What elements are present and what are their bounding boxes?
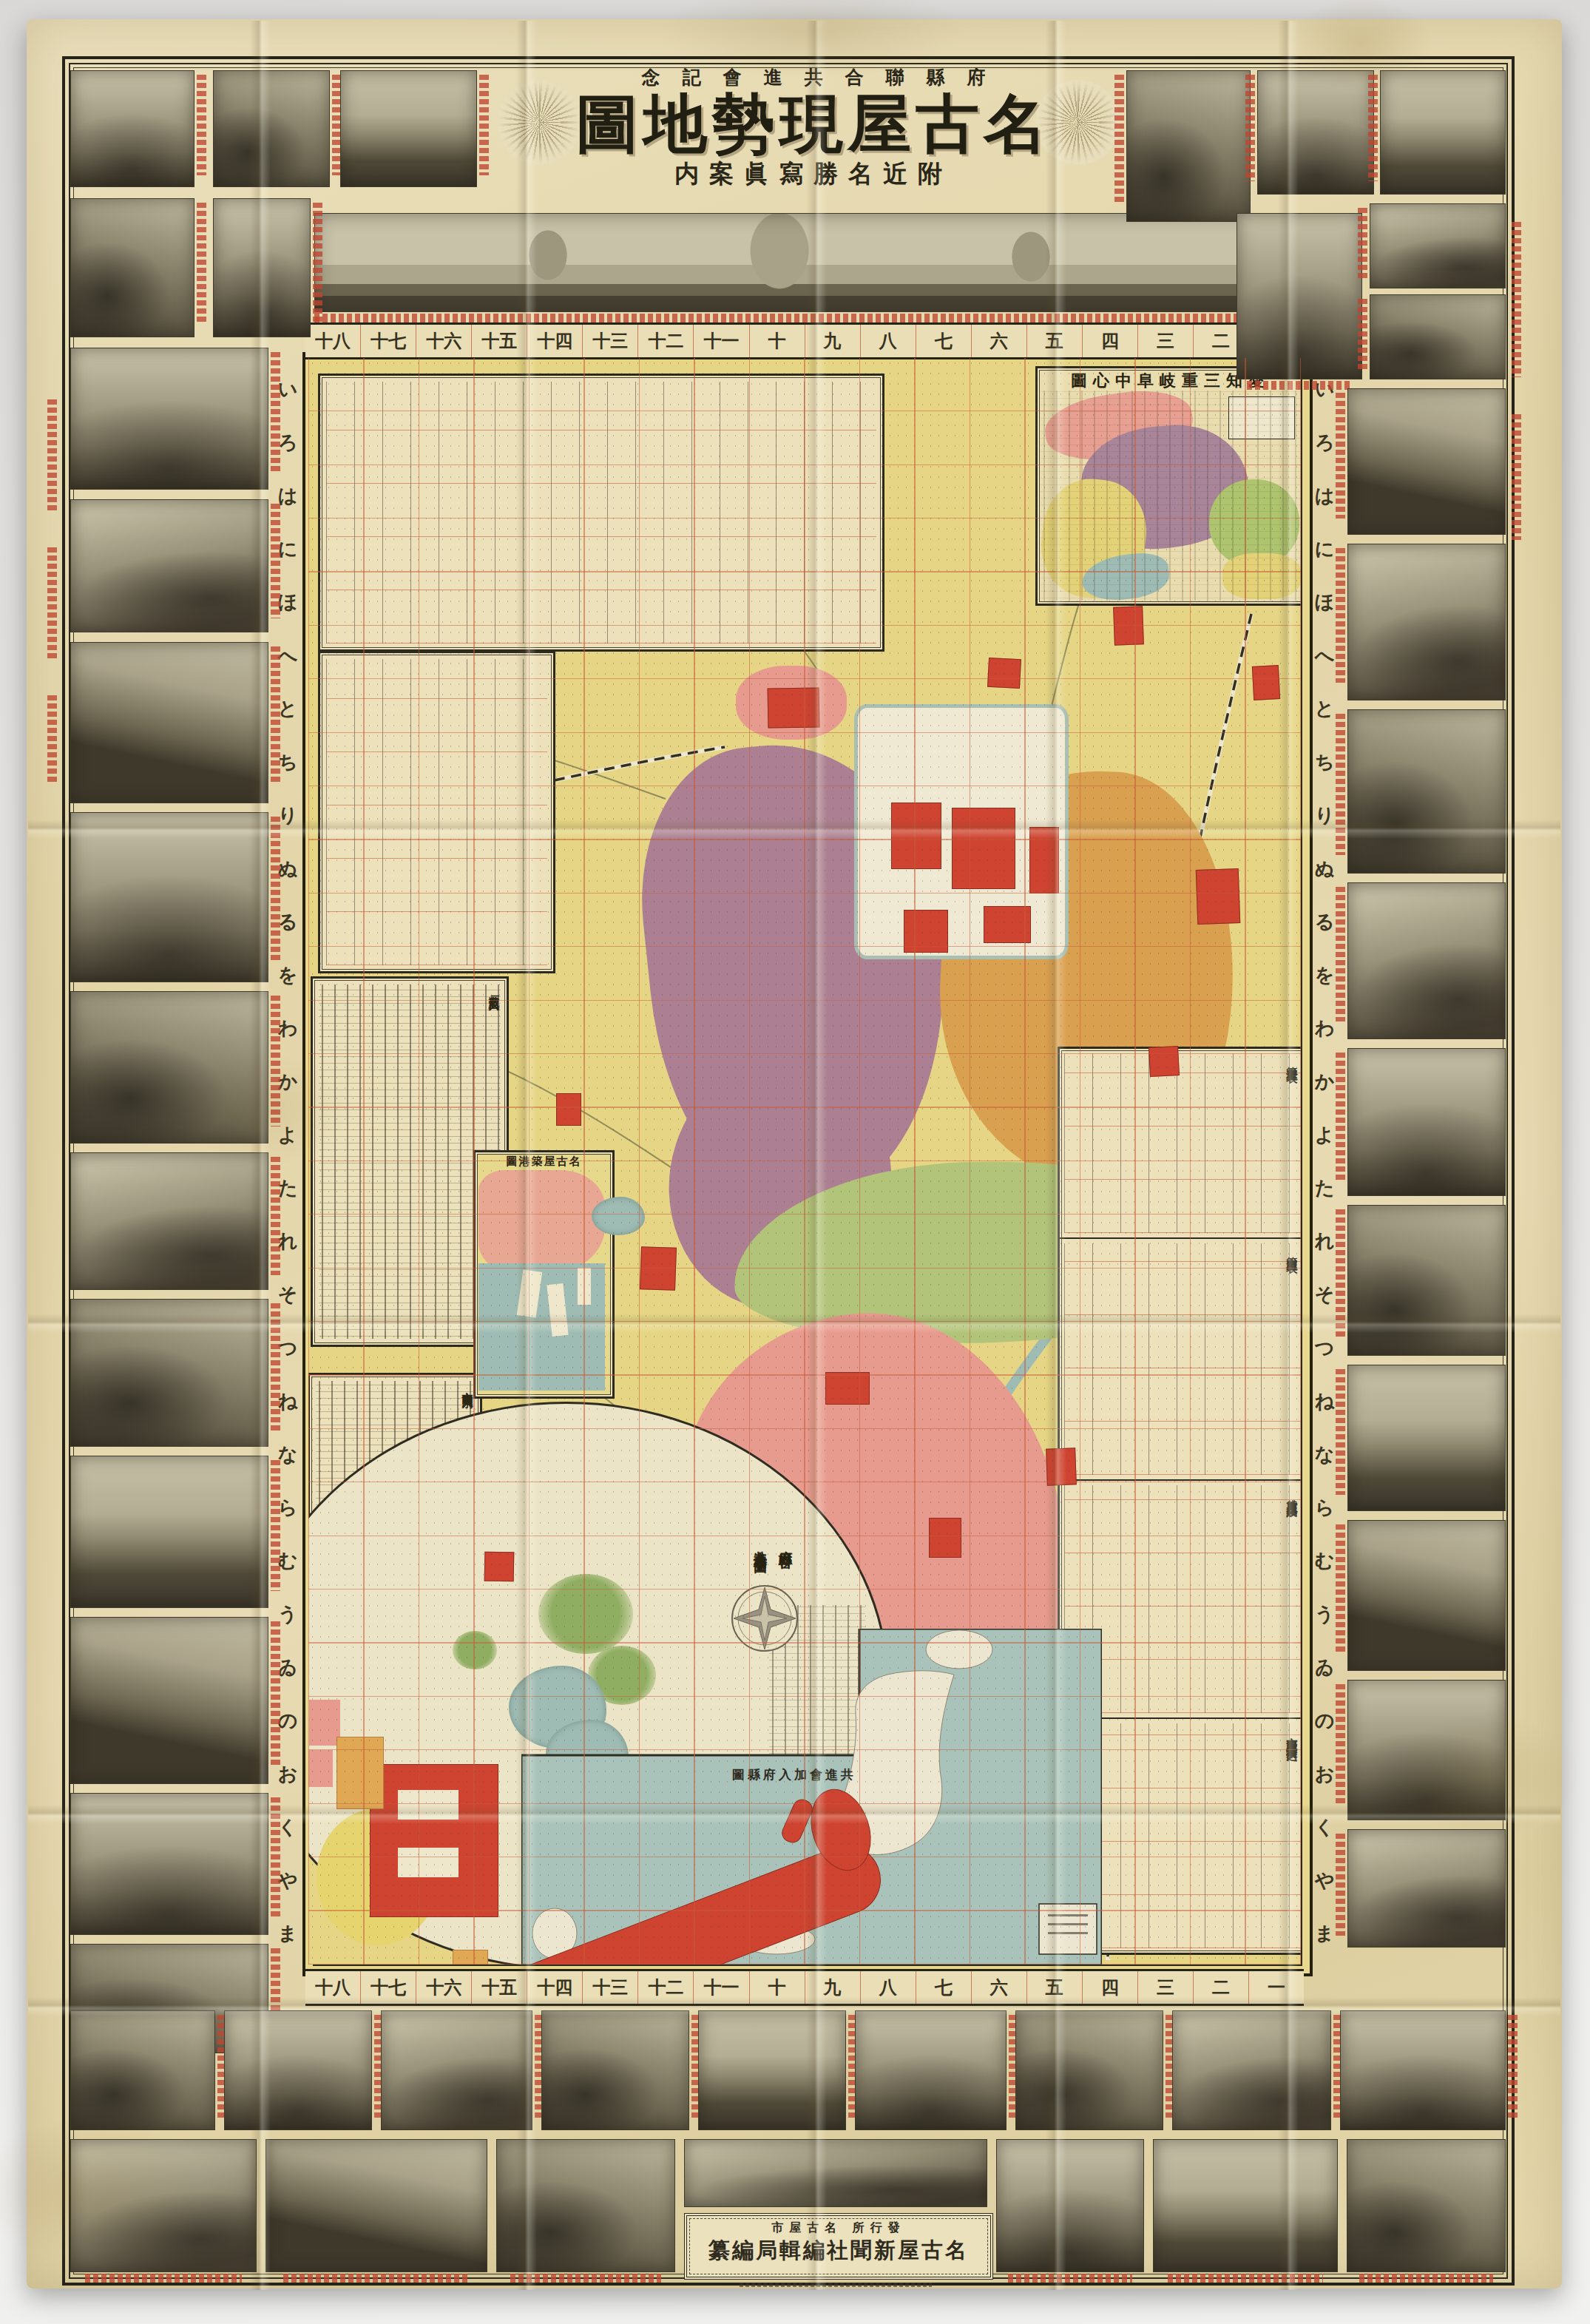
photo-caption <box>1358 299 1367 372</box>
photograph-of-antique-nagoya-map: 念記會進共合聯縣府 圖地勢現屋古名 内案眞寫勝名近附 十八十七十六十五十四十三十… <box>0 0 1590 2324</box>
grid-row-label: を <box>1310 948 1339 1001</box>
border-photo <box>698 2010 846 2130</box>
table-header: 市内警察取締營業之内 <box>1285 1728 1299 1743</box>
photo-caption <box>1168 2274 1323 2283</box>
photo-caption <box>1247 381 1353 390</box>
exposition-title-col1: 府縣聯合 <box>777 1540 794 1710</box>
regional-place-names <box>1041 391 1301 601</box>
photo-caption <box>271 1157 280 1275</box>
grid-column-number: 十四 <box>527 1971 582 2004</box>
photo-caption <box>1008 2274 1132 2283</box>
port-land <box>478 1170 605 1274</box>
border-photo <box>1126 70 1251 222</box>
border-photo <box>70 1793 268 1935</box>
photo-caption <box>313 203 322 322</box>
expo-outbuilding <box>336 1737 384 1809</box>
publisher-cartouche: 市屋古名 所行發 纂編局輯編社聞新屋古名 <box>684 2213 993 2280</box>
border-photo <box>1237 213 1362 379</box>
grid-row-label: そ <box>1310 1268 1339 1321</box>
table-text <box>1064 1053 1301 1233</box>
photo-caption <box>1508 2015 1518 2118</box>
photo-image <box>1347 1365 1506 1511</box>
photo-image <box>70 198 194 337</box>
photo-image <box>213 70 330 187</box>
grid-column-number: 二 <box>1193 1971 1248 2004</box>
grid-column-numbers-bottom: 十八十七十六十五十四十三十二十一十九八七六五四三二一 <box>305 1969 1304 2006</box>
castle-building <box>952 808 1015 889</box>
photo-caption <box>271 352 280 474</box>
photo-caption <box>1114 75 1124 205</box>
grid-row-label: と <box>1310 682 1339 735</box>
border-photo <box>1340 2010 1506 2130</box>
grid-row-label: は <box>1310 469 1339 522</box>
table-header: 管内里程表 <box>1285 1248 1299 1255</box>
border-photo <box>1172 2010 1331 2130</box>
red-city-block <box>1252 665 1280 700</box>
grid-column-number: 十八 <box>305 1971 360 2004</box>
border-photo <box>541 2010 689 2130</box>
border-photo <box>265 2139 487 2272</box>
expo-trees <box>453 1631 497 1669</box>
photo-caption <box>1336 1524 1345 1654</box>
grid-row-label: く <box>1310 1800 1339 1854</box>
grid-column-number: 六 <box>971 1971 1026 2004</box>
grid-column-number: 十六 <box>416 1971 471 2004</box>
street-index-table-left <box>318 651 555 973</box>
grid-column-number: 八 <box>860 325 916 357</box>
grid-row-label: た <box>1310 1161 1339 1215</box>
grid-column-number: 一 <box>1248 1971 1304 2004</box>
grid-row-label: ま <box>1310 1907 1339 1960</box>
table-header: 管外里程表 <box>1285 1058 1299 1065</box>
grid-row-label: へ <box>1310 629 1339 682</box>
street-index-table-main <box>318 374 884 652</box>
exhibition-hall-courtyard <box>398 1848 459 1877</box>
grid-column-number: 十三 <box>582 325 637 357</box>
photo-image <box>1172 2010 1331 2130</box>
exhibition-hall <box>370 1764 498 1917</box>
border-photo <box>1347 1829 1506 1948</box>
border-photo <box>496 2139 675 2272</box>
grid-row-label: の <box>1310 1694 1339 1747</box>
photo-caption <box>271 504 280 618</box>
grid-row-label: や <box>1310 1854 1339 1907</box>
grid-column-number: 六 <box>971 325 1026 357</box>
photo-image <box>381 2010 532 2130</box>
grid-row-label: な <box>1310 1428 1339 1481</box>
grid-row-label: ろ <box>1310 416 1339 469</box>
grid-column-number: 九 <box>805 325 860 357</box>
photo-caption <box>1336 1369 1345 1495</box>
photo-image <box>70 1456 268 1608</box>
grid-row-label: ね <box>1310 1374 1339 1428</box>
photo-caption <box>271 817 280 963</box>
photo-image <box>70 812 268 982</box>
photo-image <box>1347 544 1506 700</box>
grid-column-number: 十五 <box>471 325 527 357</box>
grid-column-number: 十八 <box>305 325 360 357</box>
grid-column-numbers-top: 十八十七十六十五十四十三十二十一十九八七六五四三二一 <box>305 322 1304 359</box>
grid-row-label: ぬ <box>1310 842 1339 895</box>
border-photo <box>1153 2139 1338 2272</box>
photo-image <box>496 2139 675 2272</box>
border-photo <box>684 2139 987 2207</box>
pier <box>578 1268 591 1305</box>
edge-caption <box>47 547 57 658</box>
border-photo <box>1347 1365 1506 1511</box>
photo-image <box>1340 2010 1506 2130</box>
castle-building <box>904 910 948 953</box>
border-photo <box>855 2010 1007 2130</box>
cartouche-inner-border <box>689 2218 988 2274</box>
red-city-block <box>1046 1448 1077 1485</box>
grid-row-label: ち <box>1310 735 1339 788</box>
panorama-caption <box>314 314 1255 322</box>
grid-column-number: 四 <box>1082 325 1137 357</box>
expo-pink-building <box>309 1700 340 1746</box>
grid-column-number: 九 <box>805 1971 860 2004</box>
photo-caption <box>1336 393 1345 518</box>
grid-column-number: 七 <box>916 1971 971 2004</box>
border-photo <box>1347 1520 1506 1671</box>
photo-caption <box>1368 75 1378 181</box>
expo-pink-building <box>308 1750 333 1787</box>
exhibition-hall-courtyard <box>398 1790 459 1820</box>
photo-image <box>70 2139 257 2272</box>
photo-image <box>684 2139 987 2207</box>
photo-caption <box>85 2274 242 2283</box>
photo-image <box>1370 203 1506 288</box>
title-block: 念記會進共合聯縣府 圖地勢現屋古名 内案眞寫勝名近附 <box>518 65 1109 192</box>
border-photo <box>70 2010 215 2130</box>
border-photo <box>70 2139 257 2272</box>
photo-image <box>340 70 477 187</box>
photo-image <box>70 1617 268 1784</box>
photo-caption <box>271 1460 280 1591</box>
photo-caption <box>197 75 206 175</box>
photo-image <box>1347 709 1506 874</box>
border-photo <box>1347 388 1506 535</box>
border-photo <box>70 198 194 337</box>
border-photo <box>70 812 268 982</box>
red-city-block <box>1113 606 1144 645</box>
grid-column-number: 十五 <box>471 1971 527 2004</box>
nagoya-port-inset-map: 圖港築屋古名 <box>473 1150 615 1399</box>
border-photo <box>340 70 477 187</box>
photo-caption <box>510 2274 660 2283</box>
border-photo <box>70 499 268 632</box>
red-city-block <box>640 1246 677 1291</box>
table-text <box>1064 1243 1301 1475</box>
photo-image <box>224 2010 372 2130</box>
red-city-block <box>929 1518 961 1558</box>
photo-image <box>1347 882 1506 1039</box>
japan-prefectures-inset-map: 圖縣府入加會進共 <box>521 1629 1102 1965</box>
border-photo <box>1347 1205 1506 1356</box>
photo-caption <box>271 996 280 1126</box>
grid-row-label: ゐ <box>1310 1641 1339 1694</box>
photo-image <box>70 70 194 187</box>
photo-image <box>70 1793 268 1935</box>
castle-building <box>1029 827 1059 894</box>
photo-image <box>1347 1205 1506 1356</box>
photo-image <box>265 2139 487 2272</box>
city-map: 戸数及人口 市内商買別 圖港築屋古名 圖心中阜岐重三知愛 <box>308 358 1301 1965</box>
grid-column-number: 四 <box>1082 1971 1137 2004</box>
border-photo <box>1347 544 1506 700</box>
border-photo <box>70 991 268 1144</box>
grid-column-number: 七 <box>916 325 971 357</box>
grid-row-label: つ <box>1310 1321 1339 1374</box>
border-photo <box>1380 70 1506 195</box>
expo-outbuilding <box>453 1950 488 1965</box>
border-photo <box>1015 2010 1163 2130</box>
edge-caption <box>47 399 57 510</box>
photo-image <box>541 2010 689 2130</box>
exposition-panorama-photo <box>314 213 1256 312</box>
grid-row-label: お <box>1310 1747 1339 1800</box>
border-photo <box>1370 203 1506 288</box>
red-city-block <box>768 687 820 728</box>
border-photo <box>1347 2139 1506 2272</box>
photo-caption <box>1336 548 1345 683</box>
exposition-inset-title: 府縣聯合 共進會々場平面圖 <box>711 1540 794 1710</box>
photo-caption <box>283 2274 470 2283</box>
grid-column-number: 十二 <box>637 325 693 357</box>
photo-image <box>1347 1520 1506 1671</box>
aichi-mie-gifu-inset-map: 圖心中阜岐重三知愛 <box>1035 366 1301 606</box>
border-photo <box>70 1152 268 1290</box>
mileage-table-inner: 管内里程表 <box>1060 1239 1301 1481</box>
grid-column-number: 八 <box>860 1971 916 2004</box>
border-photo <box>1347 1048 1506 1196</box>
exposition-title-col2: 共進會々場平面圖 <box>751 1540 769 1710</box>
grid-column-number: 十一 <box>693 1971 748 2004</box>
port-inset-title: 圖港築屋古名 <box>476 1155 612 1169</box>
photo-image <box>1257 70 1374 195</box>
map-subtitle: 内案眞寫勝名近附 <box>518 158 1109 191</box>
map-title: 圖地勢現屋古名 <box>518 89 1109 158</box>
photo-caption <box>271 646 280 785</box>
castle-building <box>984 906 1031 943</box>
grid-row-label: れ <box>1310 1215 1339 1268</box>
photo-image <box>1370 294 1506 379</box>
grid-row-label: か <box>1310 1055 1339 1108</box>
border-photo <box>70 348 268 490</box>
photo-image <box>70 499 268 632</box>
photo-image <box>70 991 268 1144</box>
border-photo <box>1347 882 1506 1039</box>
photo-image <box>1347 1680 1506 1820</box>
border-photo <box>381 2010 532 2130</box>
red-city-block <box>556 1093 581 1126</box>
grid-column-number: 十四 <box>527 325 582 357</box>
red-city-block <box>1148 1046 1180 1077</box>
edge-caption <box>1512 414 1521 540</box>
red-city-block <box>987 658 1021 689</box>
table-header: 貸座敷及娼妓 <box>1285 1490 1299 1499</box>
photo-image <box>1347 1829 1506 1948</box>
border-photo <box>70 1617 268 1784</box>
photo-caption <box>1336 887 1345 1021</box>
red-city-block <box>484 1552 515 1582</box>
index-text <box>326 382 876 644</box>
table-header: 戸数及人口 <box>487 986 501 993</box>
border-photo <box>70 1299 268 1447</box>
photo-image <box>1380 70 1506 195</box>
photo-image <box>698 2010 846 2130</box>
grid-row-label: に <box>1310 522 1339 575</box>
castle-building <box>891 803 941 869</box>
red-city-block <box>825 1372 870 1405</box>
grid-column-number: 十一 <box>693 325 748 357</box>
border-photo <box>70 642 268 803</box>
grid-row-label: う <box>1310 1587 1339 1641</box>
japan-inset-title: 圖縣府入加會進共 <box>732 1767 856 1782</box>
printer-imprint-text <box>740 2283 932 2287</box>
border-photo <box>1347 1680 1506 1820</box>
border-photo <box>213 198 311 337</box>
photo-image <box>1347 2139 1506 2272</box>
pond <box>592 1197 645 1235</box>
grid-column-number: 十 <box>749 325 805 357</box>
mileage-table-outer: 管外里程表 <box>1060 1049 1301 1239</box>
red-city-block <box>1196 868 1241 925</box>
photo-image <box>70 348 268 490</box>
photo-caption <box>1336 1053 1345 1180</box>
grid-row-label: よ <box>1310 1108 1339 1161</box>
photo-image <box>213 198 311 337</box>
grid-column-number: 三 <box>1137 325 1193 357</box>
grid-column-number: 五 <box>1026 325 1082 357</box>
grid-column-number: 十 <box>749 1971 805 2004</box>
photo-image <box>855 2010 1007 2130</box>
border-photo <box>996 2139 1144 2272</box>
photo-caption <box>479 75 489 175</box>
photo-caption <box>271 1303 280 1430</box>
photo-caption <box>1336 714 1345 855</box>
photo-image <box>1237 213 1362 379</box>
photo-caption <box>1358 208 1367 281</box>
grid-column-number: 十二 <box>637 1971 693 2004</box>
photo-caption <box>1336 1209 1345 1339</box>
grid-row-label: り <box>1310 788 1339 842</box>
border-photo <box>1370 294 1506 379</box>
grid-column-number: 三 <box>1137 1971 1193 2004</box>
photo-image <box>70 1299 268 1447</box>
photo-image <box>1015 2010 1163 2130</box>
photo-image <box>70 2010 215 2130</box>
border-photo <box>70 1456 268 1608</box>
border-photo <box>1347 709 1506 874</box>
photo-image <box>1347 388 1506 535</box>
grid-row-label: む <box>1310 1534 1339 1587</box>
photo-caption <box>1336 1684 1345 1805</box>
border-photo <box>224 2010 372 2130</box>
index-text <box>326 659 547 965</box>
photo-caption <box>1336 1834 1345 1936</box>
border-photo <box>1257 70 1374 195</box>
table-header: 市内商買別 <box>460 1382 474 1390</box>
grid-row-label: ら <box>1310 1481 1339 1534</box>
photo-caption <box>271 1797 280 1919</box>
border-photo <box>213 70 330 187</box>
grid-row-label: ほ <box>1310 575 1339 629</box>
photo-image <box>1347 1048 1506 1196</box>
photo-caption <box>271 1621 280 1765</box>
grid-column-number: 十七 <box>360 325 416 357</box>
photo-caption <box>1359 2274 1493 2283</box>
photo-image <box>1126 70 1251 222</box>
grid-column-number: 十六 <box>416 325 471 357</box>
photo-image <box>1153 2139 1338 2272</box>
grid-row-label: る <box>1310 895 1339 948</box>
grid-column-number: 十七 <box>360 1971 416 2004</box>
photo-image <box>996 2139 1144 2272</box>
edge-caption <box>1512 222 1521 377</box>
edge-caption <box>47 695 57 784</box>
grid-column-number: 五 <box>1026 1971 1082 2004</box>
grid-column-number: 十三 <box>582 1971 637 2004</box>
photo-caption <box>197 203 206 322</box>
grid-row-label: わ <box>1310 1001 1339 1055</box>
photo-image <box>70 642 268 803</box>
photo-image <box>70 1152 268 1290</box>
photo-caption <box>1245 75 1255 181</box>
border-photo <box>70 70 194 187</box>
